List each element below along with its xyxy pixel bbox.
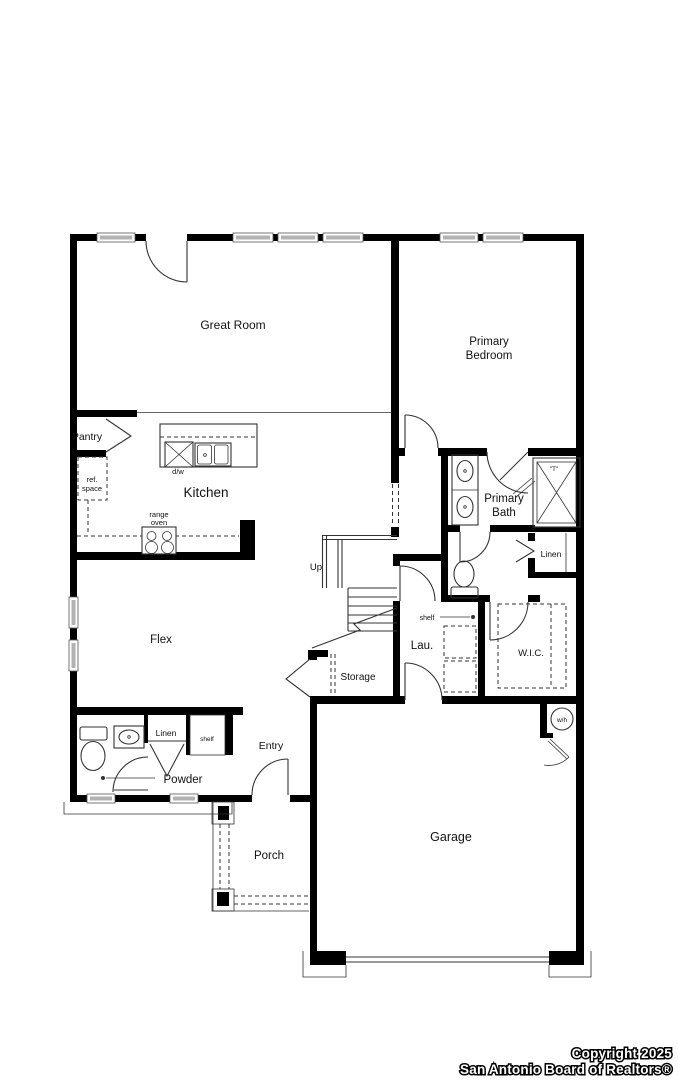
room-labels: Great Room Primary Bedroom Pantry ref. s…: [72, 318, 568, 862]
label-shelf-laundry: shelf: [420, 615, 435, 622]
porch-post: [212, 802, 234, 824]
front-step: [64, 802, 232, 814]
powder-fixtures: [80, 715, 225, 780]
vanity-double-sink: [452, 455, 478, 525]
bedroom-door: [405, 415, 438, 448]
porch-post: [212, 889, 234, 911]
copyright-watermark: Copyright 2025 San Antonio Board of Real…: [460, 1046, 672, 1077]
label-range-oven: oven: [151, 518, 167, 527]
room-label-primary-bedroom: Bedroom: [466, 350, 513, 362]
storage-door: [286, 659, 310, 697]
shelf-closet: [190, 715, 225, 755]
label-dishwasher: d/w: [172, 467, 184, 476]
wic-shelving: [498, 604, 566, 688]
patio-door: [146, 233, 187, 282]
room-label-linen-bath: Linen: [541, 549, 562, 559]
washer-dryer: [444, 626, 476, 692]
garage-laundry-door: [405, 663, 442, 700]
windows: [69, 233, 523, 803]
window: [69, 640, 78, 671]
powder-door: [113, 757, 148, 792]
stair-break-line: [312, 608, 397, 648]
powder-toilet-icon: [80, 727, 107, 771]
window: [233, 233, 273, 242]
range-oven-icon: [142, 527, 176, 554]
room-label-wic: W.I.C.: [518, 648, 544, 659]
linen-hall-door: [150, 744, 184, 776]
powder-sink-icon: [114, 726, 144, 748]
laundry-hall-door: [400, 566, 435, 601]
copyright-line2: San Antonio Board of Realtors®: [460, 1062, 672, 1077]
room-label-laundry: Lau.: [411, 640, 433, 652]
shelf-callout: [440, 615, 475, 619]
floor-plan-svg: Great Room Primary Bedroom Pantry ref. s…: [0, 0, 678, 1080]
room-label-storage: Storage: [340, 672, 375, 683]
kitchen-sink-icon: [195, 443, 231, 466]
label-shower-symbol: "T": [550, 466, 559, 473]
room-label-flex: Flex: [150, 634, 172, 646]
wic-door: [490, 602, 528, 640]
room-label-primary-bedroom: Primary: [469, 336, 509, 348]
window: [323, 233, 363, 242]
label-ref-space: ref.: [87, 475, 98, 484]
room-label-entry: Entry: [259, 740, 284, 752]
floor-plan-image: Great Room Primary Bedroom Pantry ref. s…: [0, 0, 678, 1080]
room-label-primary-bath: Primary: [484, 493, 524, 505]
kitchen-fixtures: [77, 413, 391, 555]
label-shelf-hall: shelf: [200, 736, 214, 743]
room-label-powder: Powder: [164, 774, 203, 786]
kitchen-island: [160, 424, 257, 467]
label-water-heater: w/h: [556, 717, 568, 724]
window: [170, 794, 198, 803]
front-door: [252, 759, 288, 795]
powder-callout: [101, 776, 155, 780]
window: [278, 233, 318, 242]
window: [87, 794, 115, 803]
window: [440, 233, 478, 242]
label-stairs-up: Up: [310, 562, 322, 573]
room-label-garage: Garage: [430, 830, 472, 844]
room-label-primary-bath: Bath: [492, 507, 516, 519]
dishwasher-icon: [165, 442, 193, 467]
pantry-door: [106, 419, 131, 452]
toilet-room-door: [460, 532, 490, 562]
window: [483, 233, 523, 242]
window: [97, 233, 135, 242]
room-label-porch: Porch: [254, 850, 284, 862]
room-label-pantry: Pantry: [72, 431, 103, 443]
toilet-icon: [451, 561, 478, 598]
stairs: [312, 535, 397, 694]
cased-opening: [393, 484, 399, 526]
room-label-great-room: Great Room: [200, 318, 265, 332]
garage-door: [303, 951, 591, 977]
water-heater-door: [544, 739, 569, 765]
room-label-linen-hall: Linen: [156, 728, 177, 738]
label-ref-space: space: [82, 484, 102, 493]
copyright-line1: Copyright 2025: [572, 1046, 673, 1061]
window: [69, 597, 78, 628]
room-label-kitchen: Kitchen: [183, 485, 228, 500]
